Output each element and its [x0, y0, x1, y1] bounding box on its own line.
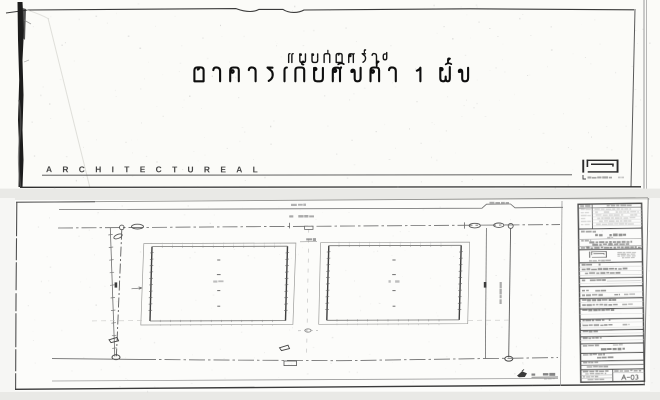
svg-text:ARCHITECTUREAL: ARCHITECTUREAL	[46, 164, 268, 174]
